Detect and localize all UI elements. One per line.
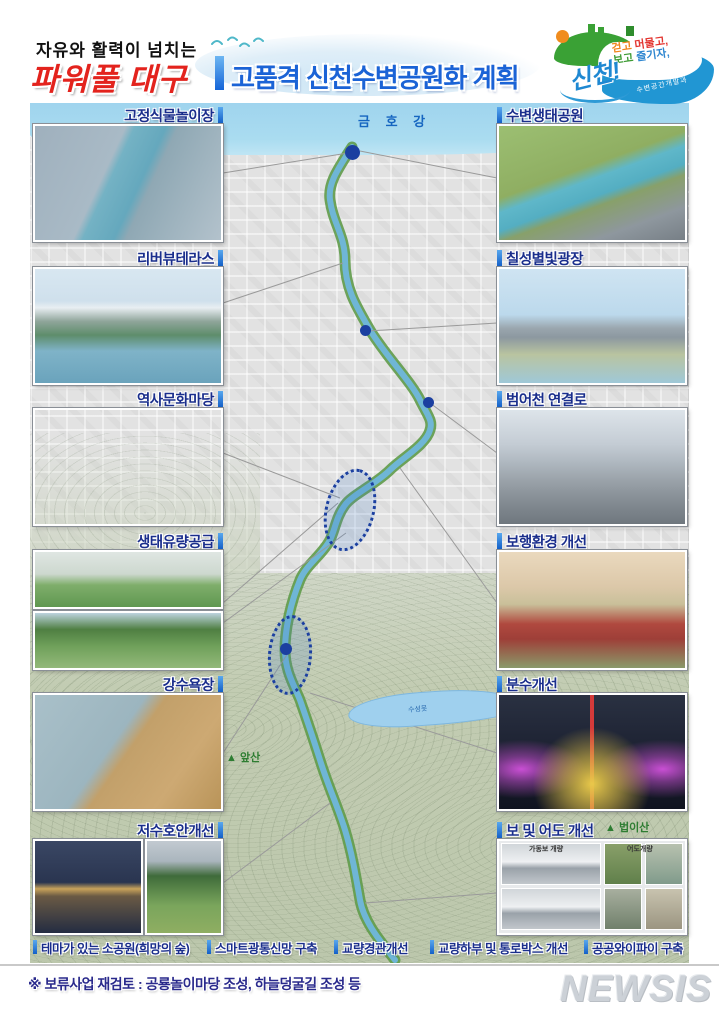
callout-label-eco-park: 수변생태공원	[497, 106, 583, 124]
callout-text: 강수욕장	[163, 674, 214, 695]
photo-walkway	[497, 550, 687, 670]
collage-weir-photo	[501, 888, 601, 930]
logo-wave-icon	[560, 90, 630, 103]
callout-label-eco-flow: 생태유량공급	[137, 532, 223, 550]
bottom-label-bridge-scenery: 교량경관개선	[334, 938, 408, 956]
callout-text: 공공와이파이 구축	[592, 938, 683, 957]
bottom-label-bridge-underside: 교량하부 및 통로박스 개선	[430, 938, 568, 956]
map-dot-north	[345, 145, 360, 160]
label-bar-icon	[207, 940, 211, 954]
callout-text: 스마트광통신망 구축	[215, 938, 317, 957]
callout-text: 보행환경 개선	[506, 531, 587, 552]
callout-label-riverview-terrace: 리버뷰테라스	[137, 249, 223, 267]
map-dot-south	[280, 643, 292, 655]
beobisan-mountain-label: ▲ 법이산	[605, 819, 649, 835]
photo-beomeocheon	[497, 408, 687, 526]
label-bar-icon	[218, 533, 223, 549]
collage-fishway-photo	[604, 888, 642, 930]
callout-text: 역사문화마당	[137, 389, 214, 410]
callout-label-walkway: 보행환경 개선	[497, 532, 587, 550]
callout-label-beomeocheon: 범어천 연결로	[497, 390, 587, 408]
photo-history-culture	[33, 408, 223, 526]
photo-fountain	[497, 693, 687, 811]
label-bar-icon	[497, 250, 502, 266]
suseong-lake-label: 수성못	[408, 704, 428, 715]
callout-text: 고정식물놀이장	[124, 105, 214, 126]
poster-title: 고품격 신천수변공원화 계획	[231, 58, 519, 95]
callout-label-river-bathing: 강수욕장	[163, 675, 223, 693]
callout-text: 교량하부 및 통로박스 개선	[438, 938, 568, 957]
photo-eco-flow-render	[33, 550, 223, 609]
label-bar-icon	[218, 676, 223, 692]
photo-riverview-terrace	[33, 267, 223, 385]
label-bar-icon	[497, 676, 502, 692]
label-bar-icon	[218, 250, 223, 266]
label-bar-icon	[497, 822, 502, 838]
label-bar-icon	[497, 107, 502, 123]
callout-label-weir-fishway: 보 및 어도 개선	[497, 821, 594, 839]
callout-label-history-culture: 역사문화마당	[137, 390, 223, 408]
map-dot-beomeo	[423, 397, 434, 408]
label-bar-icon	[334, 940, 338, 954]
title-accent-bar	[215, 56, 224, 90]
logo-sun-icon	[556, 30, 569, 43]
callout-text: 리버뷰테라스	[137, 248, 214, 269]
poster-root: 금 호 강	[0, 0, 719, 1018]
callout-label-chilseong-plaza: 칠성별빛광장	[497, 249, 583, 267]
apsan-mountain-label: ▲ 앞산	[226, 749, 260, 765]
label-bar-icon	[218, 822, 223, 838]
callout-text: 분수개선	[506, 674, 557, 695]
callout-text: 저수호안개선	[137, 820, 214, 841]
brand-powerful-daegu: 파워풀 대구	[30, 54, 187, 99]
label-bar-icon	[218, 391, 223, 407]
map-dot-mid	[360, 325, 371, 336]
callout-label-fountain: 분수개선	[497, 675, 557, 693]
photo-chilseong-plaza	[497, 267, 687, 385]
collage-fishway-photo	[645, 888, 683, 930]
callout-text: 수변생태공원	[506, 105, 583, 126]
bottom-label-theme-park: 테마가 있는 소공원(희망의 숲)	[33, 938, 189, 956]
collage-caption-fishway: 어도개량	[627, 844, 653, 854]
footnote-deferred-projects: ※ 보류사업 재검토 : 공룡놀이마당 조성, 하늘덩굴길 조성 등	[28, 974, 361, 994]
footer-divider	[0, 964, 719, 966]
label-bar-icon	[497, 391, 502, 407]
callout-text: 테마가 있는 소공원(희망의 숲)	[41, 938, 189, 957]
callout-label-fixed-waterplay: 고정식물놀이장	[124, 106, 223, 124]
newsis-watermark: NEWSIS	[560, 968, 712, 1010]
logo-building-icon	[626, 26, 634, 36]
callout-label-revetment: 저수호안개선	[137, 821, 223, 839]
photo-revetment-night	[33, 839, 143, 935]
photo-eco-flow-park	[33, 611, 223, 670]
photo-eco-park	[497, 124, 687, 242]
label-bar-icon	[430, 940, 434, 954]
label-bar-icon	[584, 940, 588, 954]
label-bar-icon	[218, 107, 223, 123]
callout-text: 보 및 어도 개선	[506, 820, 594, 841]
collage-caption-weir: 가동보 개량	[529, 844, 563, 854]
bottom-label-smart-network: 스마트광통신망 구축	[207, 938, 317, 956]
label-bar-icon	[497, 533, 502, 549]
label-bar-icon	[33, 940, 37, 954]
photo-revetment-wetland	[145, 839, 223, 935]
callout-text: 칠성별빛광장	[506, 248, 583, 269]
callout-text: 범어천 연결로	[506, 389, 587, 410]
bottom-label-public-wifi: 공공와이파이 구축	[584, 938, 683, 956]
callout-text: 생태유량공급	[137, 531, 214, 552]
callout-text: 교량경관개선	[342, 938, 408, 957]
photo-river-bathing	[33, 693, 223, 811]
geumho-river-label: 금 호 강	[358, 111, 431, 130]
sincheon-logo: 걷고 머물고, 보고 즐기자, 수변공간개발과 신천!	[540, 24, 716, 104]
photo-fixed-waterplay	[33, 124, 223, 242]
photo-weir-fishway-collage: 가동보 개량 어도개량	[497, 839, 687, 935]
